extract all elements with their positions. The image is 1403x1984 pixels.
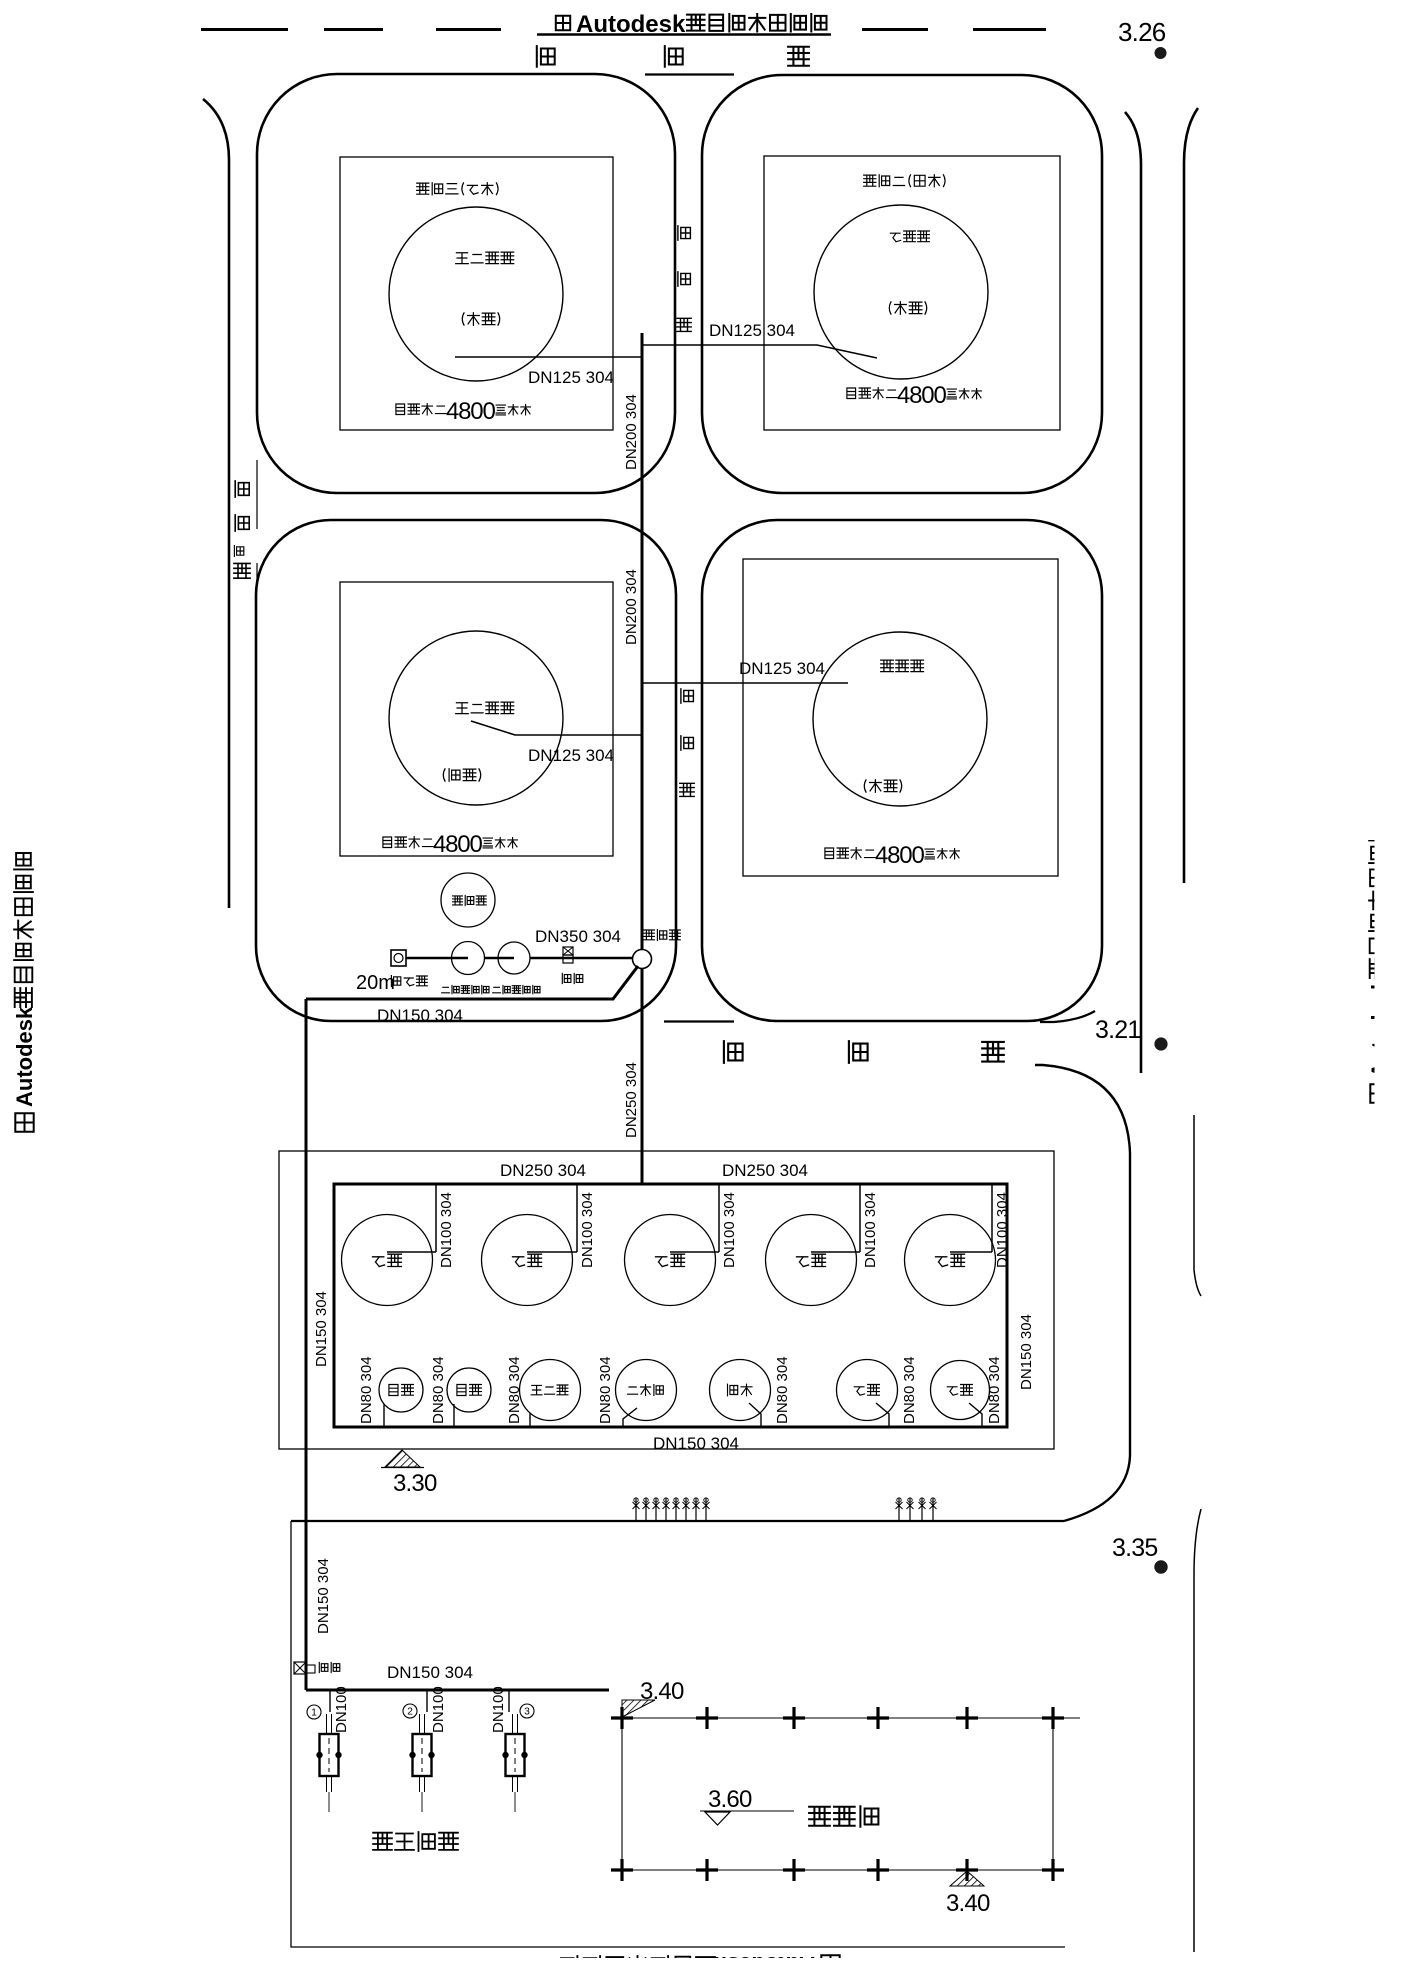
svg-text:DN250 304: DN250 304 xyxy=(500,1161,586,1180)
svg-text:Autodesk: Autodesk xyxy=(714,1952,815,1977)
svg-text:DN250 304: DN250 304 xyxy=(623,1062,640,1138)
svg-text:2: 2 xyxy=(407,1707,413,1718)
svg-text:DN100 304: DN100 304 xyxy=(862,1192,879,1268)
svg-text:DN80 304: DN80 304 xyxy=(597,1356,614,1424)
svg-text:3: 3 xyxy=(524,1707,530,1718)
svg-text:DN150 304: DN150 304 xyxy=(653,1434,739,1453)
svg-text:DN100 304: DN100 304 xyxy=(579,1192,596,1268)
svg-text:DN150 304: DN150 304 xyxy=(315,1558,332,1634)
svg-text:3.26: 3.26 xyxy=(1118,17,1166,47)
svg-text:Autodesk: Autodesk xyxy=(1367,977,1392,1078)
svg-text:3.30: 3.30 xyxy=(393,1470,437,1497)
svg-text:DN100 304: DN100 304 xyxy=(438,1192,455,1268)
svg-text:DN100: DN100 xyxy=(333,1686,350,1733)
svg-text:20m: 20m xyxy=(356,972,395,994)
svg-text:DN150 304: DN150 304 xyxy=(313,1291,330,1367)
svg-text:DN150 304: DN150 304 xyxy=(1018,1314,1035,1390)
svg-text:DN125 304: DN125 304 xyxy=(528,746,614,765)
svg-text:3.60: 3.60 xyxy=(708,1786,752,1813)
svg-text:DN100: DN100 xyxy=(490,1686,507,1733)
svg-text:DN150 304: DN150 304 xyxy=(387,1663,473,1682)
svg-text:DN200 304: DN200 304 xyxy=(623,394,640,470)
svg-text:DN125 304: DN125 304 xyxy=(709,321,795,340)
svg-text:4800: 4800 xyxy=(875,842,924,869)
svg-text:DN150 304: DN150 304 xyxy=(377,1006,463,1025)
svg-text:DN350 304: DN350 304 xyxy=(535,927,621,946)
svg-text:1: 1 xyxy=(311,1708,317,1719)
svg-text:DN125 304: DN125 304 xyxy=(739,659,825,678)
svg-text:DN200 304: DN200 304 xyxy=(623,569,640,645)
svg-text:DN80 304: DN80 304 xyxy=(986,1356,1003,1424)
svg-text:DN80 304: DN80 304 xyxy=(430,1356,447,1424)
svg-text:DN250 304: DN250 304 xyxy=(722,1161,808,1180)
svg-text:DN80 304: DN80 304 xyxy=(774,1356,791,1424)
svg-text:3.21: 3.21 xyxy=(1095,1016,1140,1044)
svg-text:4800: 4800 xyxy=(446,398,495,425)
svg-text:4800: 4800 xyxy=(433,831,482,858)
svg-text:Autodesk: Autodesk xyxy=(12,1006,37,1107)
svg-text:4800: 4800 xyxy=(897,382,946,409)
svg-text:3.40: 3.40 xyxy=(946,1890,990,1917)
svg-text:DN100 304: DN100 304 xyxy=(994,1192,1011,1268)
svg-text:DN80 304: DN80 304 xyxy=(506,1356,523,1424)
svg-text:DN100: DN100 xyxy=(430,1686,447,1733)
svg-text:DN100 304: DN100 304 xyxy=(721,1192,738,1268)
svg-text:DN80 304: DN80 304 xyxy=(358,1356,375,1424)
svg-text:3.35: 3.35 xyxy=(1112,1534,1157,1562)
svg-text:DN125 304: DN125 304 xyxy=(528,368,614,387)
svg-text:DN80 304: DN80 304 xyxy=(901,1356,918,1424)
